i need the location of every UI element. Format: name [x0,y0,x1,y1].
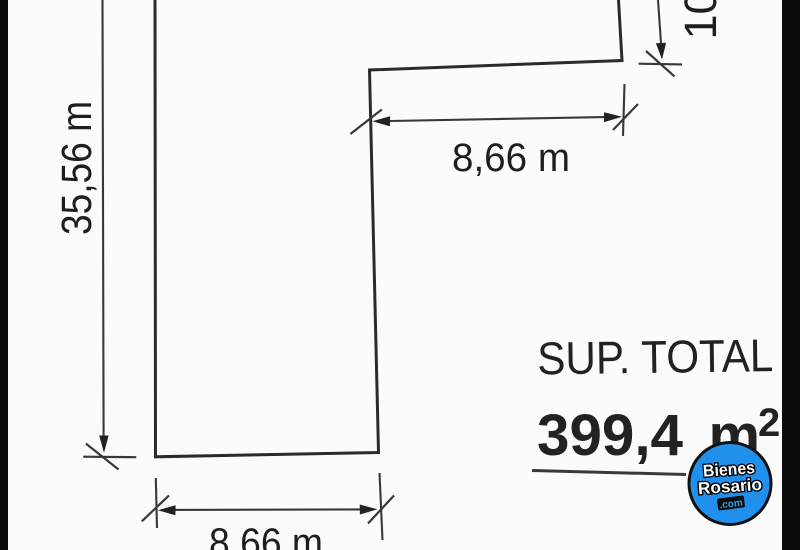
svg-text:10,00 m: 10,00 m [675,0,726,40]
svg-text:399,4: 399,4 [537,403,683,468]
svg-text:2: 2 [758,401,780,445]
svg-text:8,66 m: 8,66 m [209,520,323,550]
svg-text:35,56 m: 35,56 m [53,101,101,235]
svg-text:SUP. TOTAL: SUP. TOTAL [537,329,774,384]
svg-text:8,66 m: 8,66 m [452,136,570,180]
